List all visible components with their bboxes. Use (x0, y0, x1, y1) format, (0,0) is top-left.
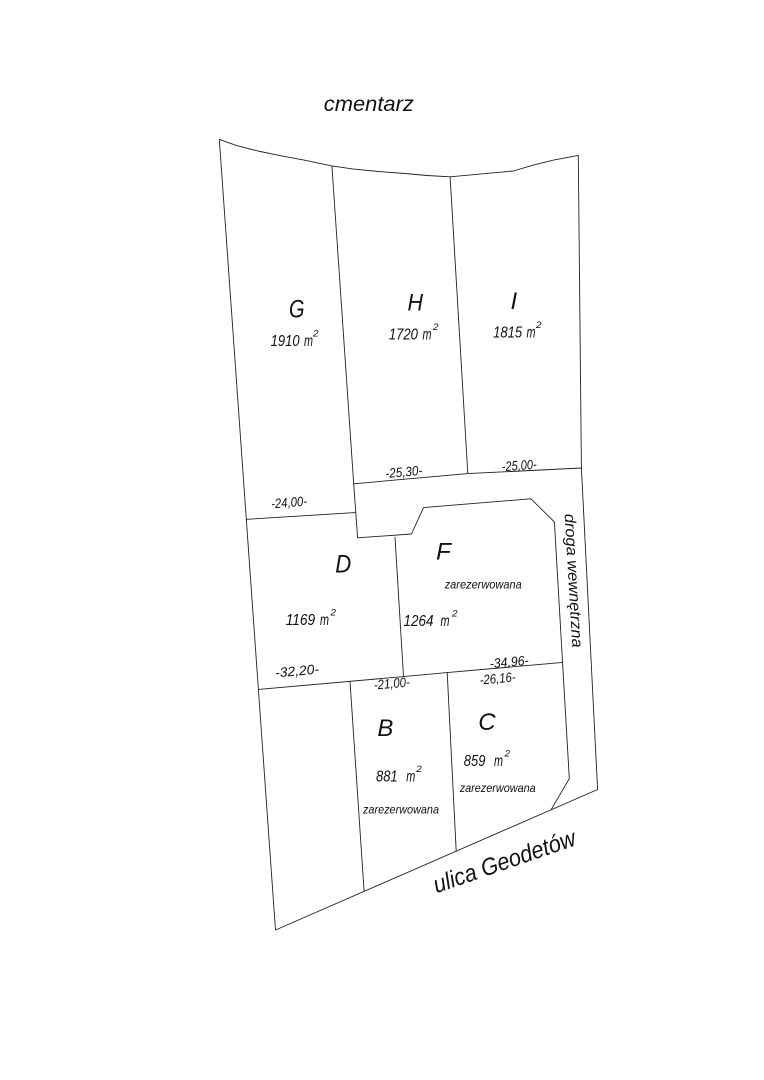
svg-text:cmentarz: cmentarz (324, 93, 415, 116)
svg-text:2: 2 (329, 608, 336, 619)
svg-text:859: 859 (464, 753, 486, 770)
svg-text:1264: 1264 (404, 613, 434, 630)
svg-text:m: m (320, 612, 329, 629)
svg-text:H: H (408, 289, 424, 316)
svg-text:m: m (494, 753, 503, 770)
svg-text:1169: 1169 (286, 612, 316, 629)
svg-text:G: G (289, 296, 305, 324)
svg-text:-21,00-: -21,00- (373, 674, 411, 692)
svg-text:B: B (377, 715, 393, 742)
svg-text:2: 2 (432, 322, 439, 333)
svg-text:-25,00-: -25,00- (501, 457, 537, 474)
svg-text:I: I (510, 288, 517, 315)
svg-text:zarezerwowana: zarezerwowana (444, 577, 522, 591)
svg-text:1910: 1910 (271, 333, 300, 350)
svg-text:2: 2 (312, 329, 319, 340)
svg-text:m: m (304, 333, 313, 350)
svg-text:2: 2 (503, 749, 510, 760)
svg-text:m: m (406, 769, 415, 786)
svg-text:m: m (441, 613, 450, 630)
svg-text:D: D (335, 551, 351, 579)
svg-text:-24,00-: -24,00- (271, 494, 308, 512)
svg-text:881: 881 (376, 769, 398, 786)
svg-text:2: 2 (451, 609, 458, 620)
svg-text:1815: 1815 (493, 324, 522, 341)
svg-text:zarezerwowana: zarezerwowana (459, 781, 536, 795)
svg-text:2: 2 (535, 320, 542, 331)
svg-text:C: C (478, 709, 496, 736)
svg-text:1720: 1720 (389, 327, 418, 344)
svg-text:zarezerwowana: zarezerwowana (362, 803, 439, 817)
svg-text:2: 2 (415, 764, 422, 775)
svg-text:F: F (436, 539, 452, 566)
svg-text:m: m (423, 327, 432, 344)
svg-text:m: m (527, 324, 536, 341)
svg-text:-26,16-: -26,16- (479, 669, 517, 687)
